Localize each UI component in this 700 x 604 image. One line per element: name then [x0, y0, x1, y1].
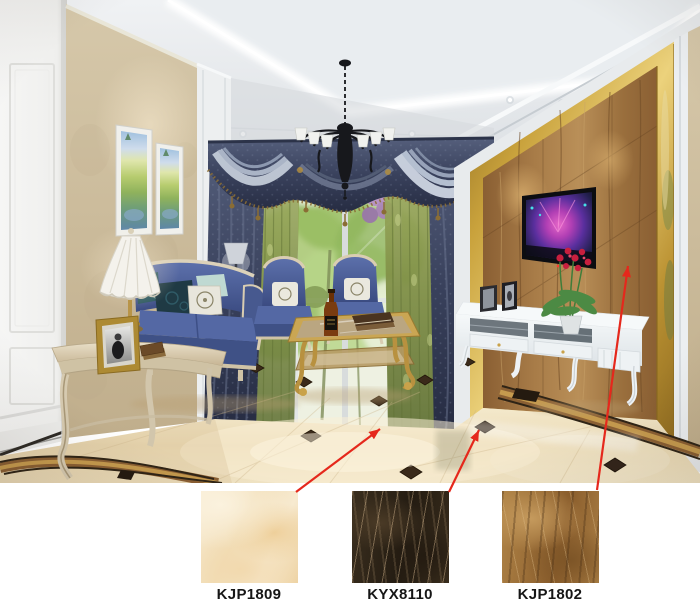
room-rendering: [0, 0, 700, 483]
tile-code-label: KYX8110: [367, 586, 432, 603]
tile-code-label: KJP1809: [217, 586, 282, 603]
vignette: [0, 0, 700, 483]
tile-swatch-kyx8110: [352, 491, 449, 583]
tile-swatch-kjp1802: [502, 491, 599, 583]
tile-promo-composite: KJP1809 KYX8110 KJP1802: [0, 0, 700, 604]
tile-swatch-kjp1809: [201, 491, 298, 583]
tile-code-label: KJP1802: [518, 586, 583, 603]
